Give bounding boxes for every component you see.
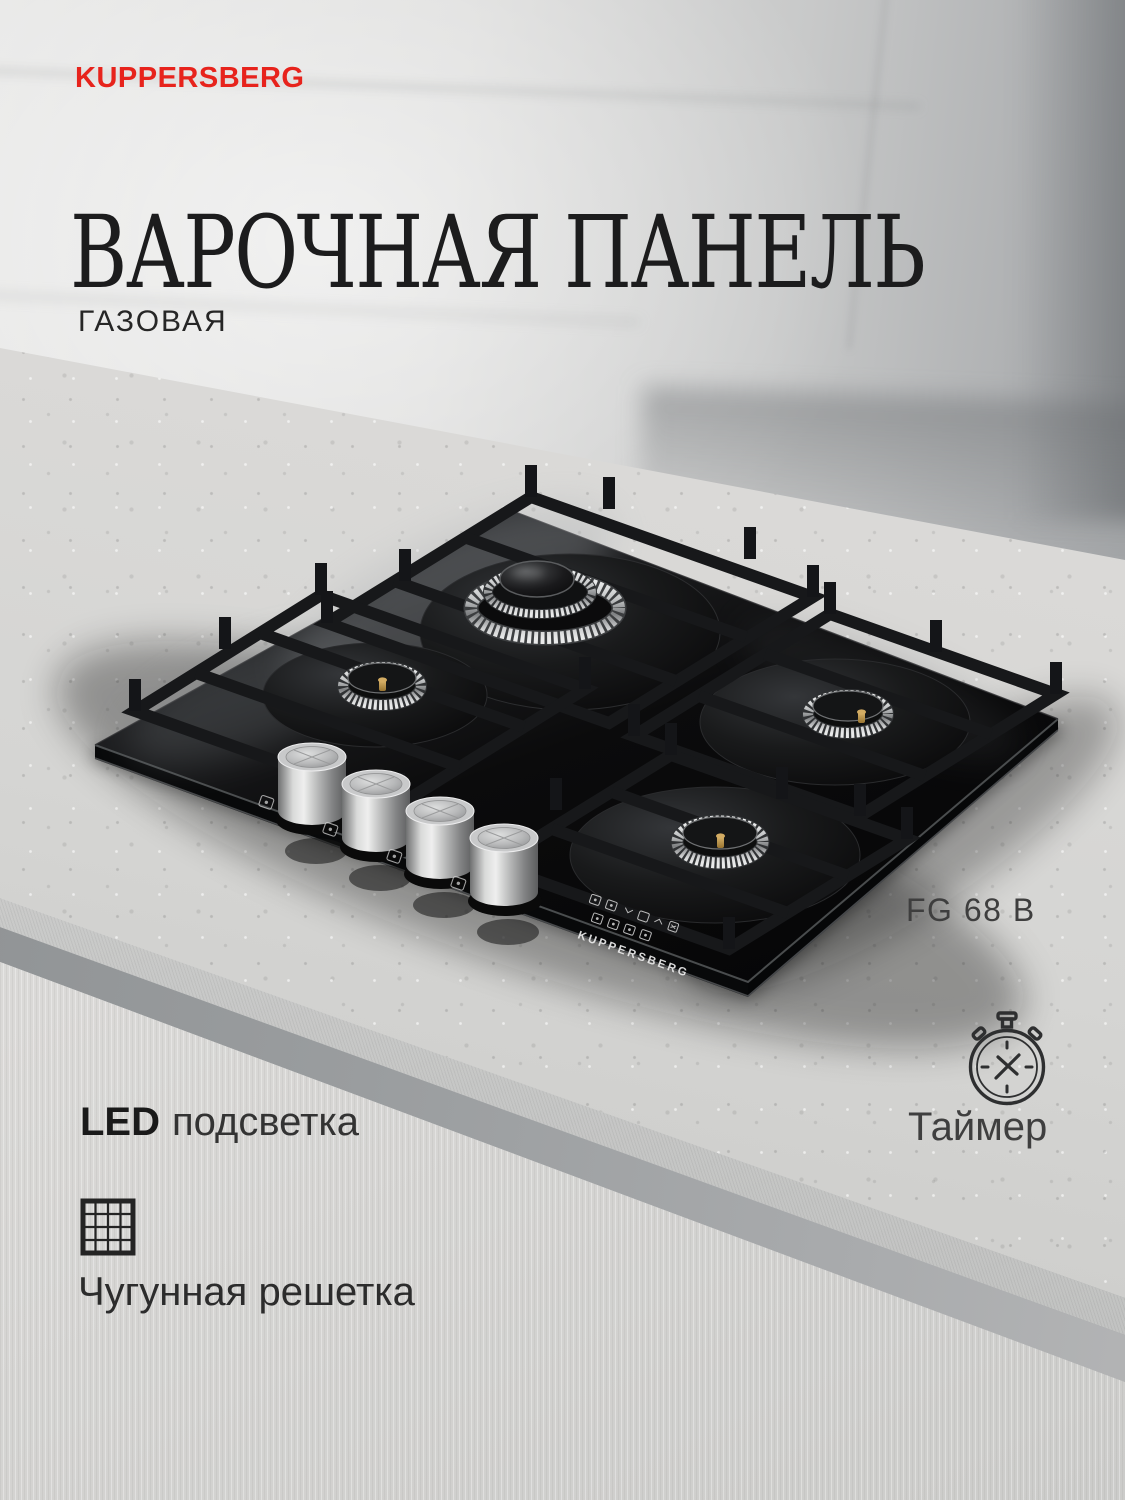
feature-led: LEDподсветка bbox=[80, 1100, 359, 1145]
model-label: FG 68 B bbox=[906, 892, 1036, 929]
feature-timer-label: Таймер bbox=[908, 1105, 1047, 1150]
page-title: ВАРОЧНАЯ ПАНЕЛЬ bbox=[70, 203, 924, 303]
burner-front bbox=[677, 817, 763, 863]
brand-logo: KUPPERSBERG bbox=[75, 62, 305, 95]
cast-iron-grid-icon bbox=[80, 1198, 136, 1256]
product-poster: KUPPERSBERG KUPPERSBERG ВАРОЧНАЯ ПАНЕЛЬ … bbox=[0, 0, 1125, 1500]
feature-grate-label: Чугунная решетка bbox=[78, 1270, 415, 1315]
feature-led-label: подсветка bbox=[172, 1100, 359, 1144]
stopwatch-icon bbox=[960, 1010, 1054, 1108]
burner-left bbox=[343, 663, 421, 705]
feature-led-prefix: LED bbox=[80, 1100, 160, 1144]
burner-right bbox=[808, 691, 888, 733]
page-subtitle: ГАЗОВАЯ bbox=[78, 305, 228, 339]
